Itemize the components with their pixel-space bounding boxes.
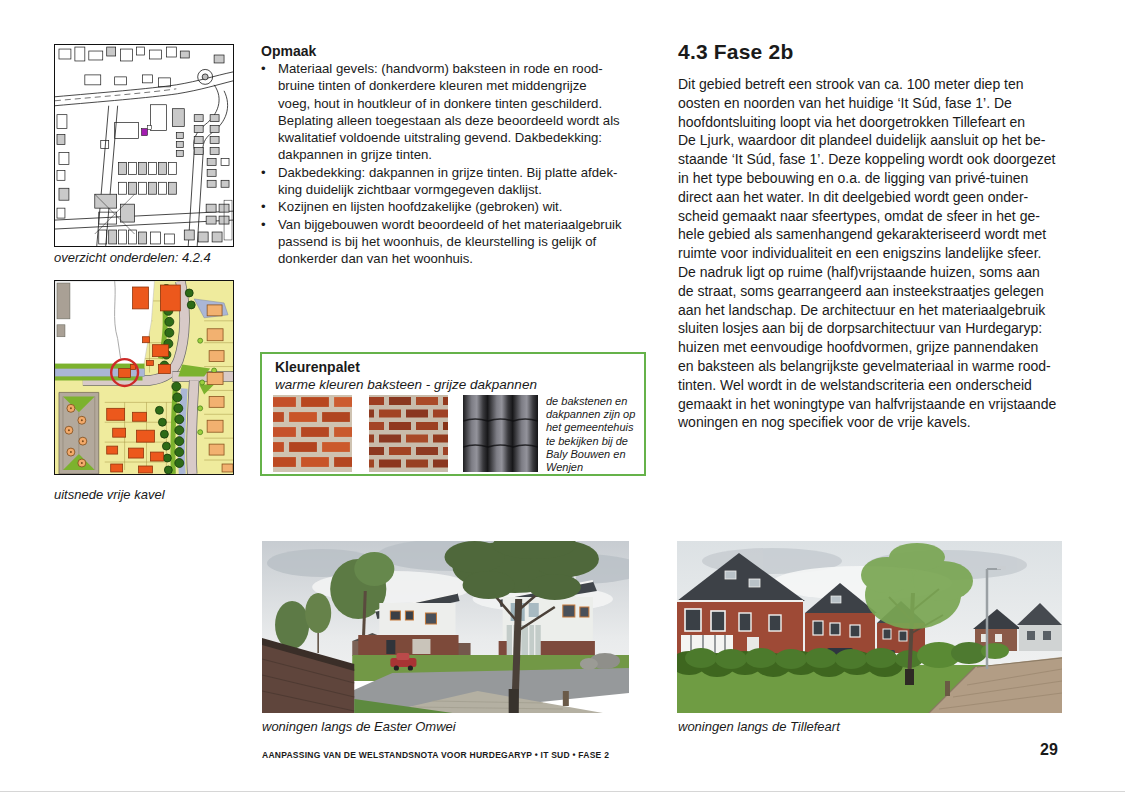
overview-map-caption: overzicht onderdelen: 4.2.4 [54,250,211,265]
bullet-item: • Van bijgebouwen wordt beoordeeld of he… [261,216,653,268]
detail-map-caption: uitsnede vrije kavel [54,487,165,502]
bullet-item: • Dakbedekking: dakpannen in grijze tint… [261,164,653,199]
brick-swatch-red [273,395,352,472]
kleurenpalet-note: de bakstenen en dakpannen zijn op het ge… [546,395,641,474]
overview-map-figure: overzicht onderdelen: 4.2.4 [54,44,234,247]
bullet-icon: • [261,164,278,199]
bullet-item: • Materiaal gevels: (handvorm) baksteen … [261,60,653,164]
bullet-item: • Kozijnen en lijsten hoofdzakelijke (ge… [261,198,653,215]
footer-running-title: AANPASSING VAN DE WELSTANDSNOTA VOOR HUR… [262,750,609,760]
opmaak-heading: Opmaak [261,43,316,59]
rooftile-swatch-grey [463,395,538,472]
bullet-text: Van bijgebouwen wordt beoordeeld of het … [278,216,622,268]
brick-swatch-darkred [369,395,448,472]
bullet-icon: • [261,216,278,268]
photo-easter-omwei-caption: woningen langs de Easter Omwei [262,719,456,734]
bullet-icon: • [261,60,278,164]
opmaak-bullet-list: • Materiaal gevels: (handvorm) baksteen … [261,60,653,268]
section-title: 4.3 Fase 2b [678,40,793,64]
bullet-text: Kozijnen en lijsten hoofdzakelijke (gebr… [278,198,562,215]
detail-map-image [54,280,234,475]
page-number: 29 [1040,741,1058,759]
photo-easter-omwei [262,541,629,713]
photo-tillefeart-caption: woningen langs de Tillefeart [678,719,840,734]
detail-map-figure: uitsnede vrije kavel [54,280,234,475]
bullet-text: Materiaal gevels: (handvorm) baksteen in… [278,60,620,164]
bullet-text: Dakbedekking: dakpannen in grijze tinten… [278,164,617,199]
bullet-icon: • [261,198,278,215]
document-page: overzicht onderdelen: 4.2.4 [0,0,1125,795]
kleurenpalet-title: Kleurenpalet [275,359,360,375]
kleurenpalet-box: Kleurenpalet warme kleuren baksteen - gr… [260,352,646,476]
section-body: Dit gebied betreft een strook van ca. 10… [678,75,1073,432]
photo-tillefeart [677,541,1062,713]
page-bottom-edge [0,791,1125,792]
kleurenpalet-subtitle: warme kleuren baksteen - grijze dakpanne… [275,377,537,392]
overview-map-image [54,44,234,247]
